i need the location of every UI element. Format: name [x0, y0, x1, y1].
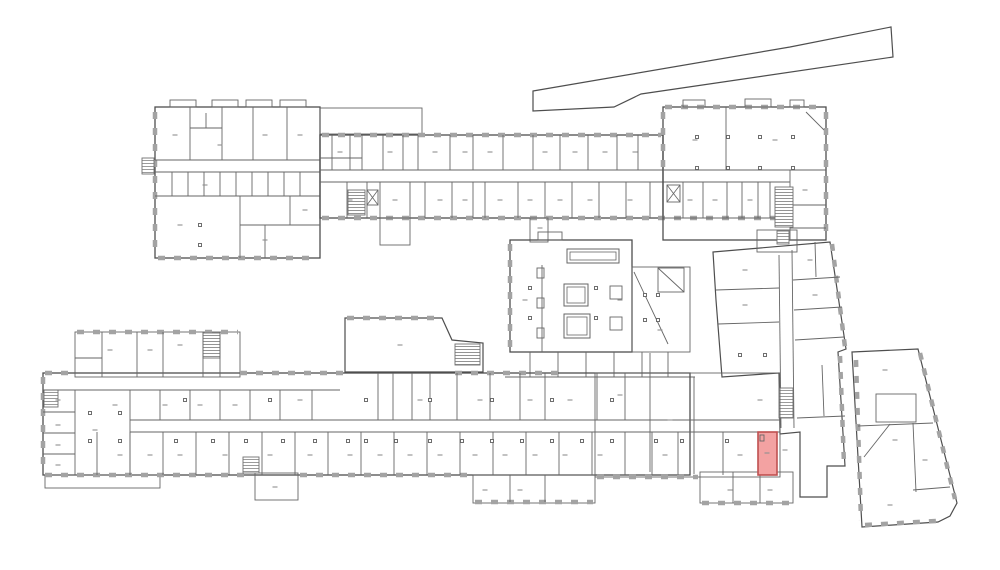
- column: [551, 399, 554, 402]
- floor-opening: [564, 314, 590, 338]
- column: [792, 167, 795, 170]
- wall: [822, 365, 824, 416]
- shaft: [610, 317, 622, 330]
- annex-outline: [473, 475, 595, 503]
- wall: [797, 416, 845, 418]
- wall: [815, 242, 816, 277]
- column: [119, 412, 122, 415]
- annex-outline: [380, 218, 410, 245]
- column: [269, 399, 272, 402]
- column: [491, 399, 494, 402]
- connector-outline: [530, 218, 548, 242]
- wall: [716, 288, 779, 290]
- wall: [864, 424, 890, 457]
- block-a-outline: [155, 107, 320, 258]
- terrace-outline: [320, 108, 422, 134]
- wall: [913, 487, 950, 490]
- column: [461, 440, 464, 443]
- column: [119, 440, 122, 443]
- column: [175, 440, 178, 443]
- wall-niche: [537, 328, 544, 338]
- wall: [658, 268, 684, 292]
- column: [759, 167, 762, 170]
- inner-room: [876, 394, 916, 422]
- wall: [858, 423, 933, 426]
- column: [696, 136, 699, 139]
- column: [657, 294, 660, 297]
- column: [347, 440, 350, 443]
- bay-window: [170, 100, 196, 107]
- stair-hatch: [775, 187, 793, 227]
- column: [551, 440, 554, 443]
- wall: [793, 277, 840, 280]
- wall: [806, 112, 824, 130]
- stage-platform-inner: [570, 252, 616, 260]
- column: [644, 294, 647, 297]
- column: [365, 440, 368, 443]
- stage-platform: [567, 249, 619, 263]
- column: [282, 440, 285, 443]
- wall: [794, 307, 842, 310]
- floor-plan-drawing: [0, 0, 1000, 570]
- wall: [634, 272, 668, 344]
- floor-plan-canvas: [0, 0, 1000, 570]
- column: [491, 440, 494, 443]
- lift-hatch: [777, 231, 789, 244]
- column: [199, 244, 202, 247]
- wall: [913, 423, 916, 492]
- column: [529, 287, 532, 290]
- column: [314, 440, 317, 443]
- column: [245, 440, 248, 443]
- stair-hatch: [348, 190, 365, 215]
- stair-hatch: [203, 333, 220, 358]
- hall-east-outline: [632, 267, 690, 352]
- column: [429, 440, 432, 443]
- column: [727, 167, 730, 170]
- column: [726, 440, 729, 443]
- wall: [718, 322, 779, 324]
- wall-niche: [537, 268, 544, 278]
- column: [739, 354, 742, 357]
- column: [581, 440, 584, 443]
- column: [792, 136, 795, 139]
- column: [365, 399, 368, 402]
- hall-top-annex: [538, 232, 562, 240]
- column: [727, 136, 730, 139]
- column: [521, 440, 524, 443]
- column: [611, 399, 614, 402]
- column: [759, 136, 762, 139]
- bay-window: [246, 100, 272, 107]
- column: [595, 317, 598, 320]
- column: [681, 440, 684, 443]
- wall-niche: [537, 298, 544, 308]
- column: [595, 287, 598, 290]
- column: [655, 440, 658, 443]
- lift-hatch: [779, 388, 793, 418]
- wall: [795, 337, 844, 340]
- column: [764, 354, 767, 357]
- floor-opening-inner: [567, 287, 585, 303]
- column: [89, 412, 92, 415]
- site-boundary: [533, 27, 893, 111]
- wing-b-outline: [320, 135, 663, 218]
- column: [611, 440, 614, 443]
- column: [184, 399, 187, 402]
- block-d-outline: [852, 349, 957, 527]
- band-main-outline: [43, 373, 690, 475]
- column: [429, 399, 432, 402]
- column: [89, 440, 92, 443]
- column: [696, 167, 699, 170]
- shaft: [610, 286, 622, 299]
- column: [395, 440, 398, 443]
- bay-window: [212, 100, 238, 107]
- column: [212, 440, 215, 443]
- column: [657, 319, 660, 322]
- band-east-outline: [595, 373, 780, 477]
- column: [199, 224, 202, 227]
- column: [644, 319, 647, 322]
- bay-window: [280, 100, 306, 107]
- column: [529, 317, 532, 320]
- floor-opening-inner: [567, 317, 587, 335]
